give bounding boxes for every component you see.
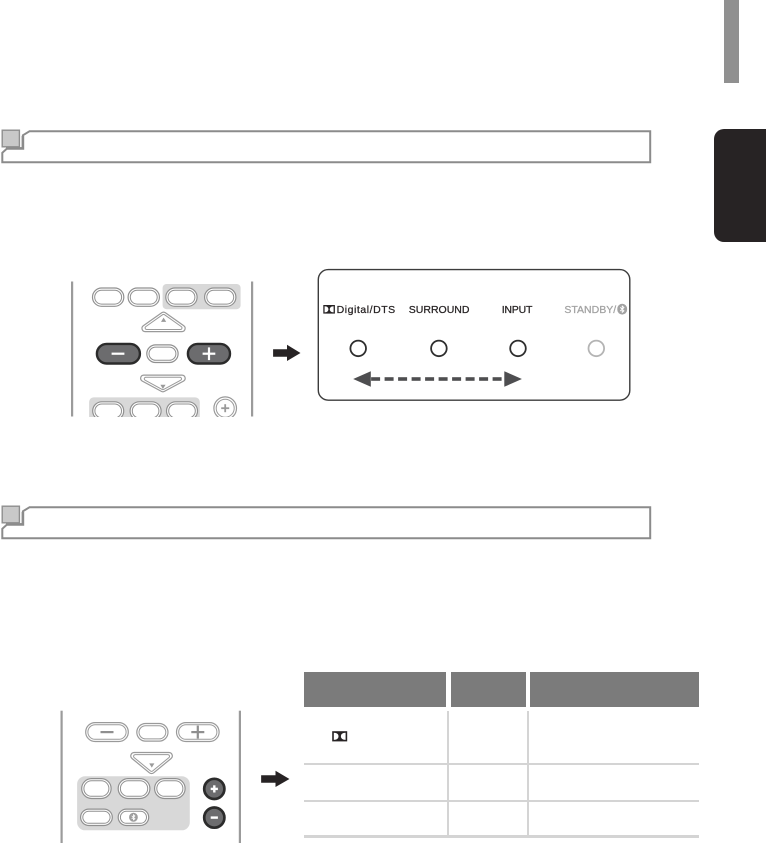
svg-text:SURROUND: SURROUND — [409, 304, 470, 316]
svg-text:Digital/DTS: Digital/DTS — [337, 304, 396, 316]
svg-text:STANDBY/: STANDBY/ — [564, 304, 616, 316]
svg-text:INPUT: INPUT — [502, 304, 533, 316]
